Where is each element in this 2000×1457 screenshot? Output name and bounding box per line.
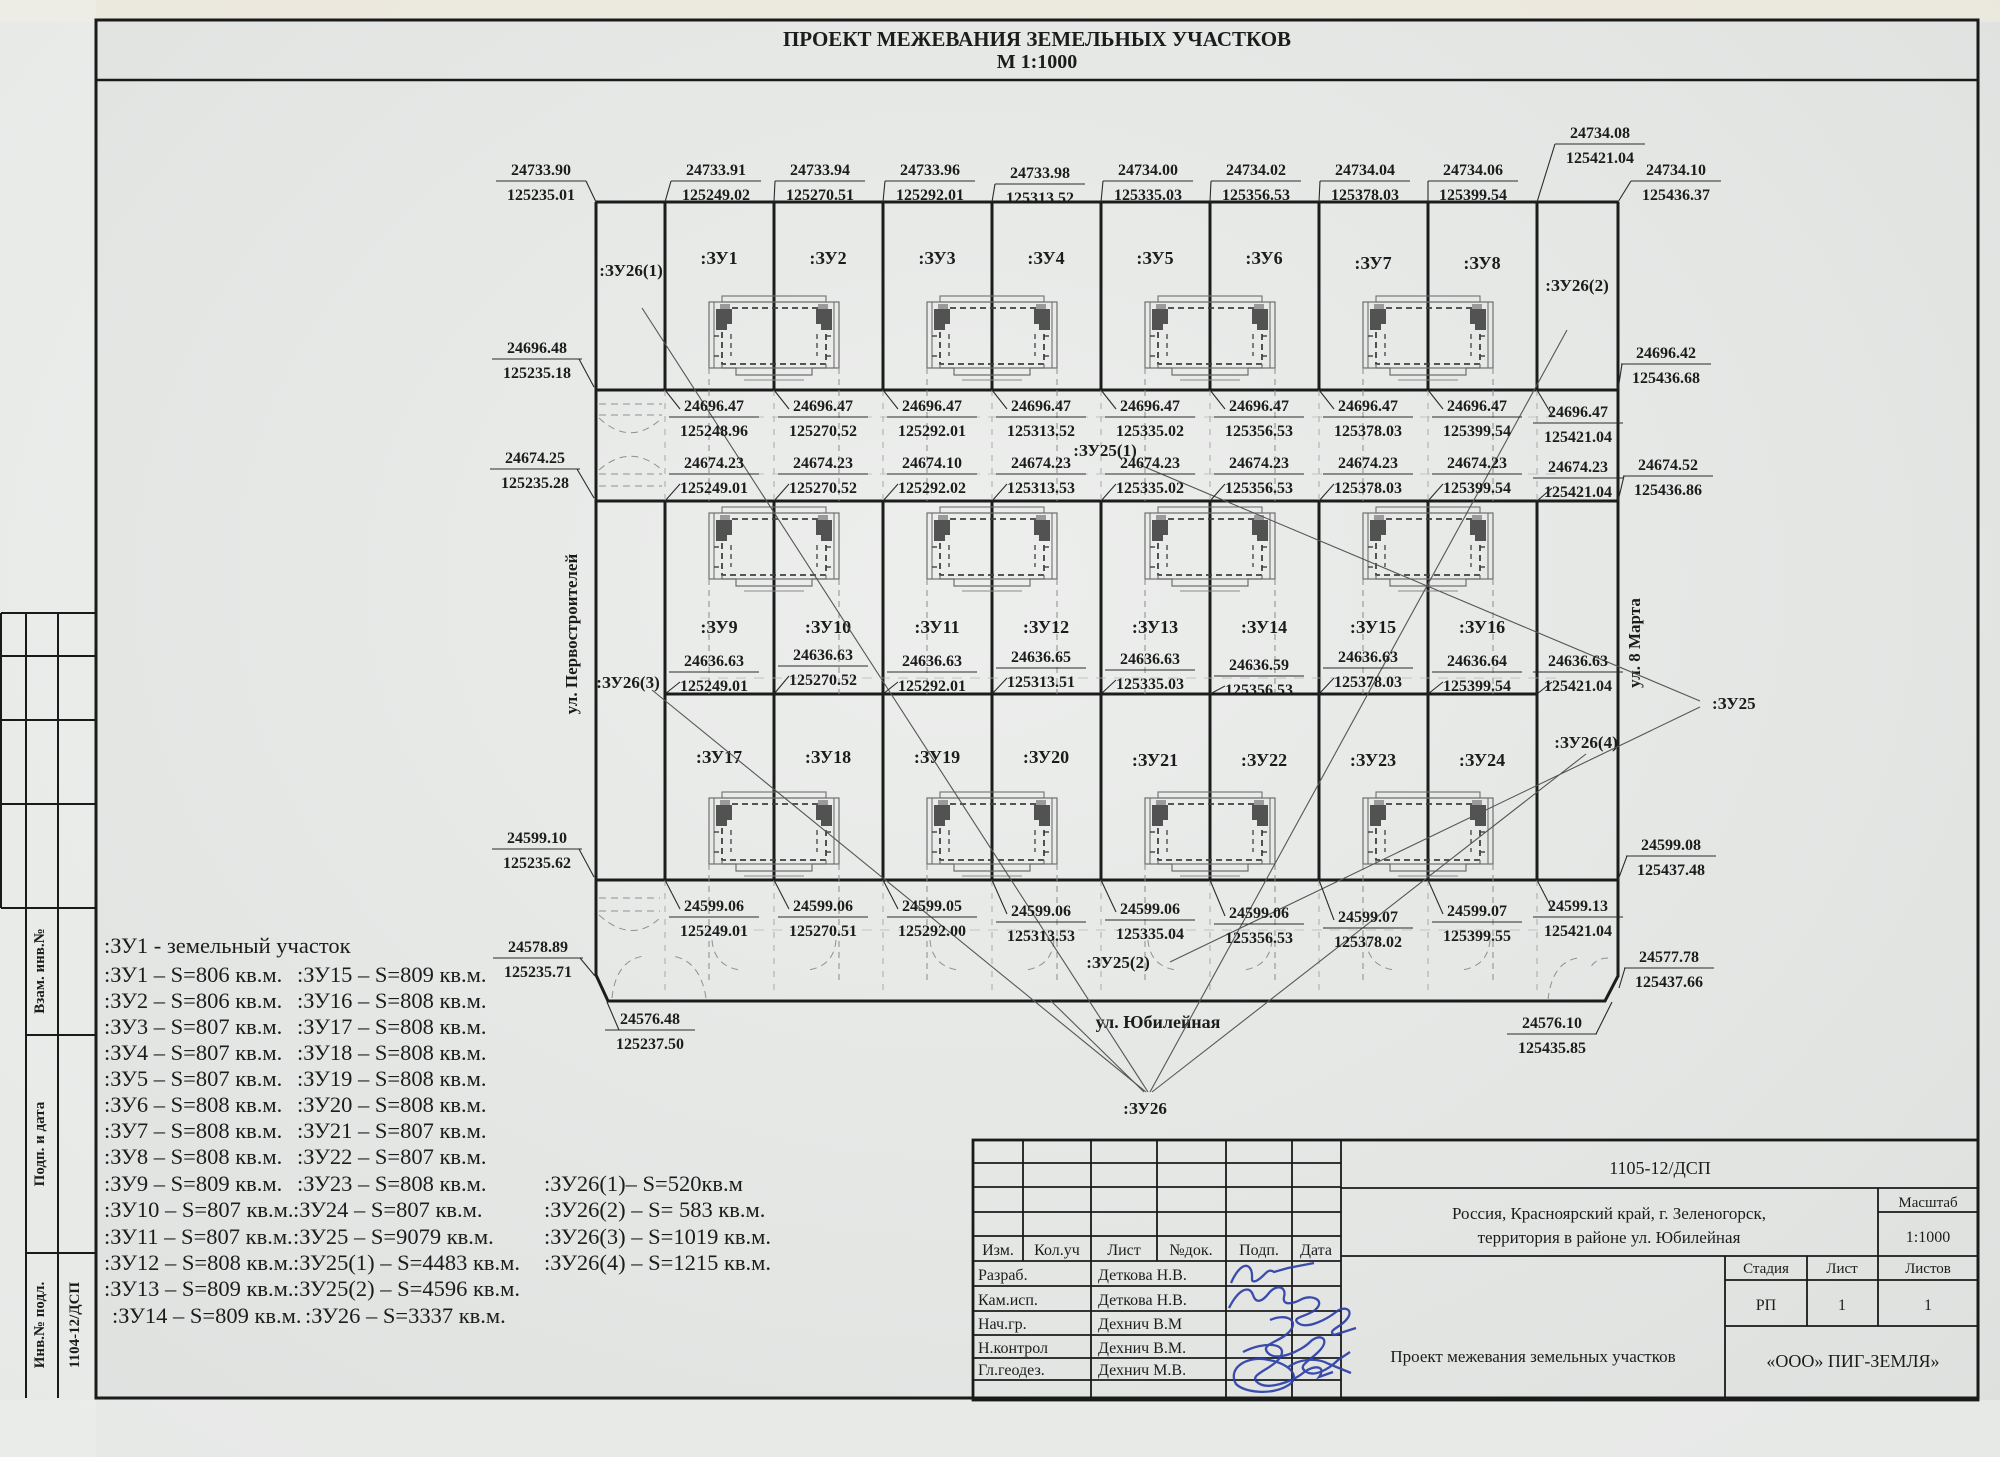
svg-text:125421.04: 125421.04 (1544, 484, 1612, 501)
svg-text::ЗУ15 – S=809 кв.м.: :ЗУ15 – S=809 кв.м. (297, 962, 487, 987)
svg-text:125248.96: 125248.96 (680, 423, 748, 440)
svg-text::ЗУ15: :ЗУ15 (1350, 617, 1396, 637)
svg-text:24576.48: 24576.48 (620, 1011, 680, 1028)
svg-text::ЗУ26(3) – S=1019 кв.м.: :ЗУ26(3) – S=1019 кв.м. (544, 1224, 771, 1249)
svg-text:125378.02: 125378.02 (1334, 934, 1402, 951)
svg-text:Гл.геодез.: Гл.геодез. (978, 1362, 1045, 1379)
svg-text:125436.37: 125436.37 (1642, 187, 1710, 204)
svg-text::ЗУ23: :ЗУ23 (1350, 750, 1396, 770)
svg-text:24696.47: 24696.47 (902, 398, 962, 415)
svg-text:24733.90: 24733.90 (511, 162, 571, 179)
svg-text::ЗУ21: :ЗУ21 (1132, 750, 1178, 770)
svg-text:125399.54: 125399.54 (1443, 480, 1511, 497)
svg-text::ЗУ18: :ЗУ18 (805, 747, 851, 767)
svg-text::ЗУ25: :ЗУ25 (1712, 694, 1756, 713)
svg-text::ЗУ7 – S=808 кв.м.: :ЗУ7 – S=808 кв.м. (104, 1118, 282, 1143)
svg-text:Дехнич М.В.: Дехнич М.В. (1098, 1362, 1186, 1379)
svg-text:№док.: №док. (1169, 1242, 1212, 1259)
svg-text:Дехнич В.М: Дехнич В.М (1098, 1316, 1182, 1333)
svg-text:24636.63: 24636.63 (793, 647, 853, 664)
svg-text::ЗУ4: :ЗУ4 (1027, 248, 1064, 268)
svg-text:24599.06: 24599.06 (1120, 901, 1180, 918)
svg-text::ЗУ9 – S=809 кв.м.: :ЗУ9 – S=809 кв.м. (104, 1171, 282, 1196)
svg-text:24599.07: 24599.07 (1338, 909, 1398, 926)
svg-text:24636.63: 24636.63 (1120, 651, 1180, 668)
svg-text::ЗУ16 – S=808 кв.м.: :ЗУ16 – S=808 кв.м. (297, 988, 487, 1013)
svg-text:ПРОЕКТ МЕЖЕВАНИЯ ЗЕМЕЛЬНЫХ УЧА: ПРОЕКТ МЕЖЕВАНИЯ ЗЕМЕЛЬНЫХ УЧАСТКОВ (783, 27, 1291, 51)
svg-text:24599.06: 24599.06 (684, 898, 744, 915)
svg-text:24674.23: 24674.23 (1011, 455, 1071, 472)
svg-text:24696.47: 24696.47 (1447, 398, 1507, 415)
svg-text:ул. 8 Марта: ул. 8 Марта (1625, 598, 1644, 688)
svg-text:24674.23: 24674.23 (684, 455, 744, 472)
svg-text:24734.00: 24734.00 (1118, 162, 1178, 179)
svg-text:125235.18: 125235.18 (503, 365, 571, 382)
svg-text::ЗУ4 – S=807 кв.м.: :ЗУ4 – S=807 кв.м. (104, 1040, 282, 1065)
svg-text::ЗУ23 – S=808 кв.м.: :ЗУ23 – S=808 кв.м. (297, 1171, 487, 1196)
svg-text:125249.02: 125249.02 (682, 187, 750, 204)
svg-text:24733.96: 24733.96 (900, 162, 960, 179)
svg-text:125378.03: 125378.03 (1334, 480, 1402, 497)
svg-text:125421.04: 125421.04 (1544, 923, 1612, 940)
svg-text:24696.48: 24696.48 (507, 340, 567, 357)
svg-text:24636.63: 24636.63 (684, 653, 744, 670)
svg-text::ЗУ2 – S=806 кв.м.: :ЗУ2 – S=806 кв.м. (104, 988, 282, 1013)
svg-text:Деткова Н.В.: Деткова Н.В. (1098, 1292, 1187, 1309)
svg-text:24674.52: 24674.52 (1638, 457, 1698, 474)
svg-text::ЗУ1: :ЗУ1 (700, 248, 737, 268)
svg-text:125421.04: 125421.04 (1566, 150, 1634, 167)
svg-text:Инв.№ подл.: Инв.№ подл. (32, 1282, 48, 1369)
svg-text:125235.71: 125235.71 (504, 964, 572, 981)
svg-text:125435.85: 125435.85 (1518, 1040, 1586, 1057)
svg-text::ЗУ13 – S=809 кв.м.: :ЗУ13 – S=809 кв.м. (104, 1276, 294, 1301)
svg-text:Проект межевания земельных уча: Проект межевания земельных участков (1390, 1347, 1675, 1366)
svg-text::ЗУ22 – S=807 кв.м.: :ЗУ22 – S=807 кв.м. (297, 1144, 487, 1169)
svg-text:24599.06: 24599.06 (1011, 903, 1071, 920)
svg-text:125270.52: 125270.52 (789, 480, 857, 497)
svg-text::ЗУ3: :ЗУ3 (918, 248, 955, 268)
svg-text::ЗУ12: :ЗУ12 (1023, 617, 1069, 637)
svg-text::ЗУ5 – S=807 кв.м.: :ЗУ5 – S=807 кв.м. (104, 1066, 282, 1091)
svg-text:территория в районе ул. Юбилей: территория в районе ул. Юбилейная (1478, 1228, 1741, 1247)
svg-text::ЗУ2: :ЗУ2 (809, 248, 846, 268)
svg-text:125421.04: 125421.04 (1544, 678, 1612, 695)
svg-text:125436.86: 125436.86 (1634, 482, 1702, 499)
svg-text:24674.10: 24674.10 (902, 455, 962, 472)
svg-text:24636.64: 24636.64 (1447, 653, 1507, 670)
svg-text:24599.10: 24599.10 (507, 830, 567, 847)
svg-text:Взам. инв.№: Взам. инв.№ (32, 928, 48, 1013)
svg-text::ЗУ10: :ЗУ10 (805, 617, 851, 637)
svg-text:125399.54: 125399.54 (1443, 678, 1511, 695)
svg-text:24734.04: 24734.04 (1335, 162, 1395, 179)
svg-text:24733.98: 24733.98 (1010, 165, 1070, 182)
svg-text::ЗУ13: :ЗУ13 (1132, 617, 1178, 637)
svg-text:24674.23: 24674.23 (1120, 455, 1180, 472)
svg-text:Лист: Лист (1826, 1261, 1858, 1277)
svg-text:Стадия: Стадия (1743, 1261, 1789, 1277)
svg-text:24674.23: 24674.23 (793, 455, 853, 472)
svg-text:125356.53: 125356.53 (1225, 423, 1293, 440)
svg-text:125313.53: 125313.53 (1007, 928, 1075, 945)
svg-text:125235.01: 125235.01 (507, 187, 575, 204)
svg-text:125270.51: 125270.51 (786, 187, 854, 204)
svg-text:Лист: Лист (1107, 1242, 1141, 1259)
svg-text:125356.53: 125356.53 (1225, 930, 1293, 947)
svg-text:24576.10: 24576.10 (1522, 1015, 1582, 1032)
svg-text::ЗУ19 – S=808 кв.м.: :ЗУ19 – S=808 кв.м. (297, 1066, 487, 1091)
svg-text::ЗУ6 – S=808 кв.м.: :ЗУ6 – S=808 кв.м. (104, 1092, 282, 1117)
svg-text::ЗУ25(1) – S=4483 кв.м.: :ЗУ25(1) – S=4483 кв.м. (293, 1250, 520, 1275)
svg-text:24696.47: 24696.47 (1548, 404, 1608, 421)
svg-text:125235.62: 125235.62 (503, 855, 571, 872)
svg-text::ЗУ8: :ЗУ8 (1463, 253, 1500, 273)
svg-text:125421.04: 125421.04 (1544, 429, 1612, 446)
svg-text:125335.03: 125335.03 (1114, 187, 1182, 204)
svg-text:125356.53: 125356.53 (1225, 480, 1293, 497)
svg-text:1:1000: 1:1000 (1906, 1229, 1950, 1246)
svg-text::ЗУ1 – S=806 кв.м.: :ЗУ1 – S=806 кв.м. (104, 962, 282, 987)
svg-text:125270.52: 125270.52 (789, 423, 857, 440)
svg-text:24599.08: 24599.08 (1641, 837, 1701, 854)
svg-text::ЗУ17 – S=808 кв.м.: :ЗУ17 – S=808 кв.м. (297, 1014, 487, 1039)
svg-text::ЗУ19: :ЗУ19 (914, 747, 960, 767)
svg-text:Деткова Н.В.: Деткова Н.В. (1098, 1267, 1187, 1284)
svg-text:24696.47: 24696.47 (793, 398, 853, 415)
svg-text:ул. Юбилейная: ул. Юбилейная (1096, 1012, 1221, 1032)
svg-text::ЗУ14: :ЗУ14 (1241, 617, 1287, 637)
svg-text:24599.05: 24599.05 (902, 898, 962, 915)
svg-text:24636.65: 24636.65 (1011, 649, 1071, 666)
svg-text:125399.55: 125399.55 (1443, 928, 1511, 945)
svg-text:125436.68: 125436.68 (1632, 370, 1700, 387)
svg-text:125292.01: 125292.01 (898, 678, 966, 695)
svg-text:24674.23: 24674.23 (1338, 455, 1398, 472)
svg-text:125335.04: 125335.04 (1116, 926, 1184, 943)
svg-text:М 1:1000: М 1:1000 (997, 51, 1078, 73)
svg-text:Подп.: Подп. (1239, 1242, 1279, 1259)
svg-text:1104-12/ДСП: 1104-12/ДСП (67, 1282, 83, 1368)
svg-text:125356.53: 125356.53 (1222, 187, 1290, 204)
svg-text:24577.78: 24577.78 (1639, 949, 1699, 966)
svg-text:125335.02: 125335.02 (1116, 480, 1184, 497)
svg-text:24696.47: 24696.47 (684, 398, 744, 415)
svg-text::ЗУ11 – S=807 кв.м.: :ЗУ11 – S=807 кв.м. (104, 1224, 293, 1249)
svg-text::ЗУ26(1)– S=520кв.м: :ЗУ26(1)– S=520кв.м (544, 1171, 743, 1196)
svg-text:24696.47: 24696.47 (1229, 398, 1289, 415)
svg-text:125237.50: 125237.50 (616, 1036, 684, 1053)
svg-text:24696.47: 24696.47 (1120, 398, 1180, 415)
svg-text:125249.01: 125249.01 (680, 923, 748, 940)
svg-text:24696.47: 24696.47 (1011, 398, 1071, 415)
svg-text::ЗУ16: :ЗУ16 (1459, 617, 1505, 637)
svg-text::ЗУ20 – S=808 кв.м.: :ЗУ20 – S=808 кв.м. (297, 1092, 487, 1117)
svg-text:24599.07: 24599.07 (1447, 903, 1507, 920)
svg-text::ЗУ24: :ЗУ24 (1459, 750, 1505, 770)
svg-text::ЗУ5: :ЗУ5 (1136, 248, 1173, 268)
svg-text::ЗУ24 – S=807 кв.м.: :ЗУ24 – S=807 кв.м. (293, 1197, 483, 1222)
svg-text:125292.02: 125292.02 (898, 480, 966, 497)
svg-text:24599.06: 24599.06 (793, 898, 853, 915)
svg-text::ЗУ26 – S=3337 кв.м.: :ЗУ26 – S=3337 кв.м. (305, 1303, 506, 1328)
svg-text::ЗУ26(2) – S= 583 кв.м.: :ЗУ26(2) – S= 583 кв.м. (544, 1197, 765, 1222)
svg-text::ЗУ22: :ЗУ22 (1241, 750, 1287, 770)
svg-text:125249.01: 125249.01 (680, 678, 748, 695)
svg-text:24733.94: 24733.94 (790, 162, 850, 179)
svg-text:24734.10: 24734.10 (1646, 162, 1706, 179)
svg-text:1105-12/ДСП: 1105-12/ДСП (1609, 1158, 1711, 1178)
svg-text::ЗУ18 – S=808 кв.м.: :ЗУ18 – S=808 кв.м. (297, 1040, 487, 1065)
svg-text:125313.51: 125313.51 (1007, 674, 1075, 691)
svg-text::ЗУ10 – S=807 кв.м.: :ЗУ10 – S=807 кв.м. (104, 1197, 294, 1222)
svg-text::ЗУ6: :ЗУ6 (1245, 248, 1282, 268)
svg-text:125249.01: 125249.01 (680, 480, 748, 497)
svg-text:24636.63: 24636.63 (1338, 649, 1398, 666)
svg-text::ЗУ26: :ЗУ26 (1123, 1099, 1167, 1118)
svg-text:Кам.исп.: Кам.исп. (978, 1292, 1038, 1309)
svg-text:125437.48: 125437.48 (1637, 862, 1705, 879)
svg-text::ЗУ9: :ЗУ9 (700, 617, 737, 637)
svg-text:125270.52: 125270.52 (789, 672, 857, 689)
svg-text:Изм.: Изм. (982, 1242, 1014, 1259)
svg-text:24674.23: 24674.23 (1548, 459, 1608, 476)
svg-text::ЗУ26(4): :ЗУ26(4) (1554, 733, 1618, 752)
svg-text:125313.53: 125313.53 (1007, 480, 1075, 497)
svg-text:125292.01: 125292.01 (898, 423, 966, 440)
svg-text:ул. Первостроителей: ул. Первостроителей (562, 554, 581, 715)
svg-text:24733.91: 24733.91 (686, 162, 746, 179)
svg-text:24734.02: 24734.02 (1226, 162, 1286, 179)
svg-text:24674.23: 24674.23 (1447, 455, 1507, 472)
svg-text:125378.03: 125378.03 (1334, 423, 1402, 440)
svg-text::ЗУ1 - земельный участок: :ЗУ1 - земельный участок (104, 933, 351, 958)
svg-text:125335.03: 125335.03 (1116, 676, 1184, 693)
svg-text:24734.06: 24734.06 (1443, 162, 1503, 179)
svg-text:1: 1 (1838, 1297, 1846, 1314)
svg-text:Дехнич В.М.: Дехнич В.М. (1098, 1340, 1186, 1357)
svg-text:125313.52: 125313.52 (1006, 190, 1074, 207)
svg-text:24636.63: 24636.63 (902, 653, 962, 670)
svg-text:125399.54: 125399.54 (1443, 423, 1511, 440)
svg-text::ЗУ12 – S=808 кв.м.: :ЗУ12 – S=808 кв.м. (104, 1250, 294, 1275)
svg-text:24636.59: 24636.59 (1229, 657, 1289, 674)
svg-text::ЗУ26(3): :ЗУ26(3) (596, 673, 660, 692)
svg-text:Листов: Листов (1905, 1261, 1951, 1277)
svg-text:125313.52: 125313.52 (1007, 423, 1075, 440)
svg-text:24734.08: 24734.08 (1570, 125, 1630, 142)
svg-text:125335.02: 125335.02 (1116, 423, 1184, 440)
svg-text:24636.63: 24636.63 (1548, 653, 1608, 670)
svg-text::ЗУ3 – S=807 кв.м.: :ЗУ3 – S=807 кв.м. (104, 1014, 282, 1039)
svg-text:Россия, Красноярский край, г.: Россия, Красноярский край, г. Зеленогорс… (1452, 1204, 1766, 1223)
svg-text:125378.03: 125378.03 (1334, 674, 1402, 691)
svg-text:24599.13: 24599.13 (1548, 898, 1608, 915)
svg-text::ЗУ25(2): :ЗУ25(2) (1086, 953, 1150, 972)
svg-text:1: 1 (1924, 1297, 1932, 1314)
svg-text:125399.54: 125399.54 (1439, 187, 1507, 204)
svg-text::ЗУ26(1): :ЗУ26(1) (599, 261, 663, 280)
svg-text:24674.25: 24674.25 (505, 450, 565, 467)
svg-text:Подп. и дата: Подп. и дата (32, 1101, 48, 1186)
svg-text:125356.53: 125356.53 (1225, 682, 1293, 699)
svg-text::ЗУ26(2): :ЗУ26(2) (1545, 276, 1609, 295)
svg-text:24696.47: 24696.47 (1338, 398, 1398, 415)
svg-text::ЗУ11: :ЗУ11 (914, 617, 959, 637)
svg-text:125437.66: 125437.66 (1635, 974, 1703, 991)
svg-text:Масштаб: Масштаб (1898, 1195, 1958, 1211)
svg-text:24696.42: 24696.42 (1636, 345, 1696, 362)
svg-text:24578.89: 24578.89 (508, 939, 568, 956)
svg-text::ЗУ20: :ЗУ20 (1023, 747, 1069, 767)
svg-text:«ООО» ПИГ-ЗЕМЛЯ»: «ООО» ПИГ-ЗЕМЛЯ» (1766, 1351, 1939, 1371)
svg-text::ЗУ21 – S=807 кв.м.: :ЗУ21 – S=807 кв.м. (297, 1118, 487, 1143)
svg-text:125292.01: 125292.01 (896, 187, 964, 204)
svg-text:РП: РП (1756, 1297, 1777, 1314)
svg-text:24599.06: 24599.06 (1229, 905, 1289, 922)
svg-text::ЗУ8 – S=808 кв.м.: :ЗУ8 – S=808 кв.м. (104, 1144, 282, 1169)
svg-text::ЗУ14 – S=809 кв.м.: :ЗУ14 – S=809 кв.м. (112, 1303, 302, 1328)
svg-text:125292.00: 125292.00 (898, 923, 966, 940)
svg-text:Кол.уч: Кол.уч (1034, 1242, 1080, 1259)
svg-text:Нач.гр.: Нач.гр. (978, 1316, 1027, 1333)
svg-text:125235.28: 125235.28 (501, 475, 569, 492)
svg-text:Н.контрол: Н.контрол (978, 1340, 1048, 1357)
svg-text::ЗУ7: :ЗУ7 (1354, 253, 1391, 273)
svg-text:24674.23: 24674.23 (1229, 455, 1289, 472)
svg-text:125270.51: 125270.51 (789, 923, 857, 940)
svg-text:125378.03: 125378.03 (1331, 187, 1399, 204)
svg-text::ЗУ26(4) – S=1215 кв.м.: :ЗУ26(4) – S=1215 кв.м. (544, 1250, 771, 1275)
svg-text::ЗУ25 – S=9079 кв.м.: :ЗУ25 – S=9079 кв.м. (293, 1224, 494, 1249)
svg-text:Дата: Дата (1300, 1242, 1332, 1259)
svg-text:Разраб.: Разраб. (978, 1267, 1028, 1284)
svg-text::ЗУ25(2) – S=4596 кв.м.: :ЗУ25(2) – S=4596 кв.м. (293, 1276, 520, 1301)
